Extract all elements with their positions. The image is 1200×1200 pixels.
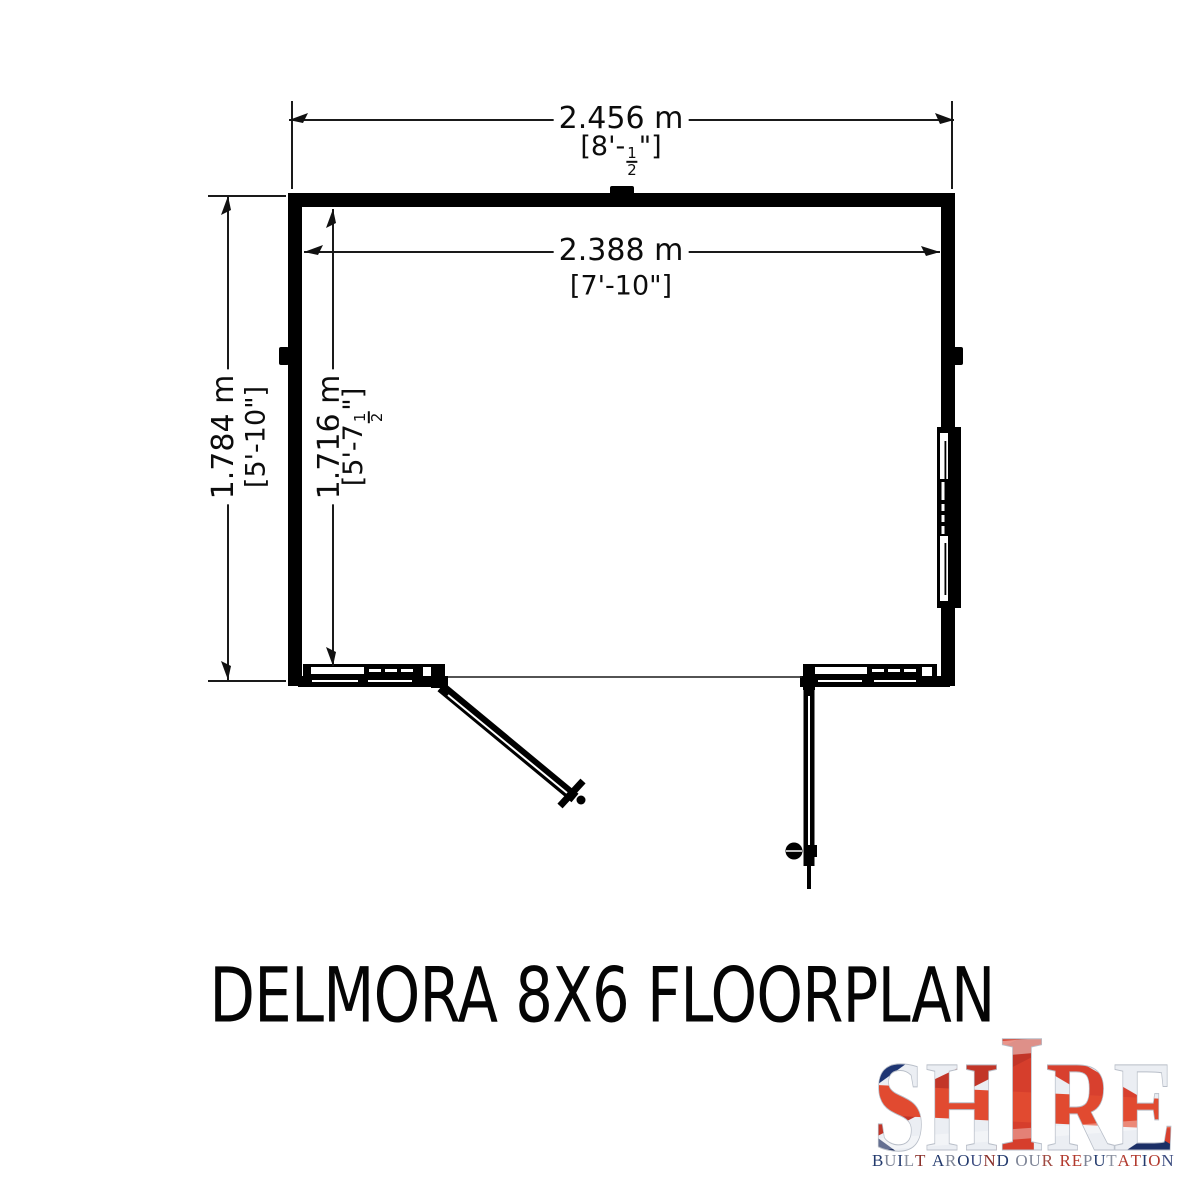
tagline-letter: R xyxy=(1042,1152,1053,1169)
tagline-letter: L xyxy=(904,1152,914,1169)
dim-width-outer-imperial: [8'-12"] xyxy=(575,132,666,178)
shire-wordmark: SHIRE xyxy=(873,1022,1176,1154)
logo-tagline: BUILTAROUNDOURREPUTATION xyxy=(872,1152,1174,1169)
shire-logo: SHIRE xyxy=(856,1022,1186,1154)
tagline-letter: B xyxy=(872,1152,883,1169)
door-leaf-left xyxy=(431,664,586,806)
dim-width-inner-imperial: [7'-10"] xyxy=(565,272,677,301)
dim-depth-outer-imperial: [5'-10"] xyxy=(242,381,271,493)
tagline-letter: N xyxy=(983,1152,995,1169)
shire-text: SHIRE xyxy=(873,1022,1176,1154)
tagline-letter: T xyxy=(1106,1152,1116,1169)
right-joint-marker xyxy=(953,347,963,365)
tagline-letter: A xyxy=(1117,1152,1129,1169)
window-right xyxy=(937,427,961,608)
tagline-letter: A xyxy=(932,1152,944,1169)
floorplan-page: 2.456 m [8'-12"] 2.388 m [7'-10"] 1.784 … xyxy=(0,0,1200,1200)
tagline-letter: U xyxy=(884,1152,896,1169)
tagline-letter: R xyxy=(1060,1152,1071,1169)
door-leaf-right xyxy=(786,664,818,889)
tagline-letter: I xyxy=(897,1152,903,1169)
dim-depth-inner-imperial: [5'-712"] xyxy=(339,383,385,491)
window-sash-bottom xyxy=(940,536,948,601)
wall-left xyxy=(288,193,302,686)
roof-apex-marker xyxy=(610,186,634,195)
tagline-letter: N xyxy=(1161,1152,1173,1169)
fraction: 12 xyxy=(352,412,384,423)
window-sash xyxy=(814,667,867,674)
dim-depth-outer-metric: 1.784 m xyxy=(208,370,240,505)
window-bottom-right xyxy=(800,664,950,687)
tagline-letter: U xyxy=(1028,1152,1040,1169)
fraction: 12 xyxy=(626,145,637,177)
tagline-letter: P xyxy=(1083,1152,1092,1169)
left-joint-marker xyxy=(279,347,289,365)
tagline-letter: I xyxy=(1142,1152,1148,1169)
tagline-letter: O xyxy=(957,1152,969,1169)
tagline-letter: U xyxy=(1093,1152,1105,1169)
window-bottom-left xyxy=(298,664,448,687)
door-hinge-right xyxy=(803,664,815,690)
window-sash xyxy=(311,667,364,674)
window-sash-top xyxy=(940,433,948,479)
tagline-letter: U xyxy=(970,1152,982,1169)
tagline-letter: O xyxy=(1015,1152,1027,1169)
tagline-letter: T xyxy=(1131,1152,1141,1169)
tagline-letter: O xyxy=(1148,1152,1160,1169)
wall-top xyxy=(288,193,955,207)
tagline-letter: R xyxy=(945,1152,956,1169)
tagline-letter: T xyxy=(915,1152,925,1169)
tagline-letter: D xyxy=(996,1152,1008,1169)
tagline-letter: E xyxy=(1072,1152,1082,1169)
door-hinge-left xyxy=(431,664,445,688)
dim-width-inner-metric: 2.388 m xyxy=(554,235,689,267)
